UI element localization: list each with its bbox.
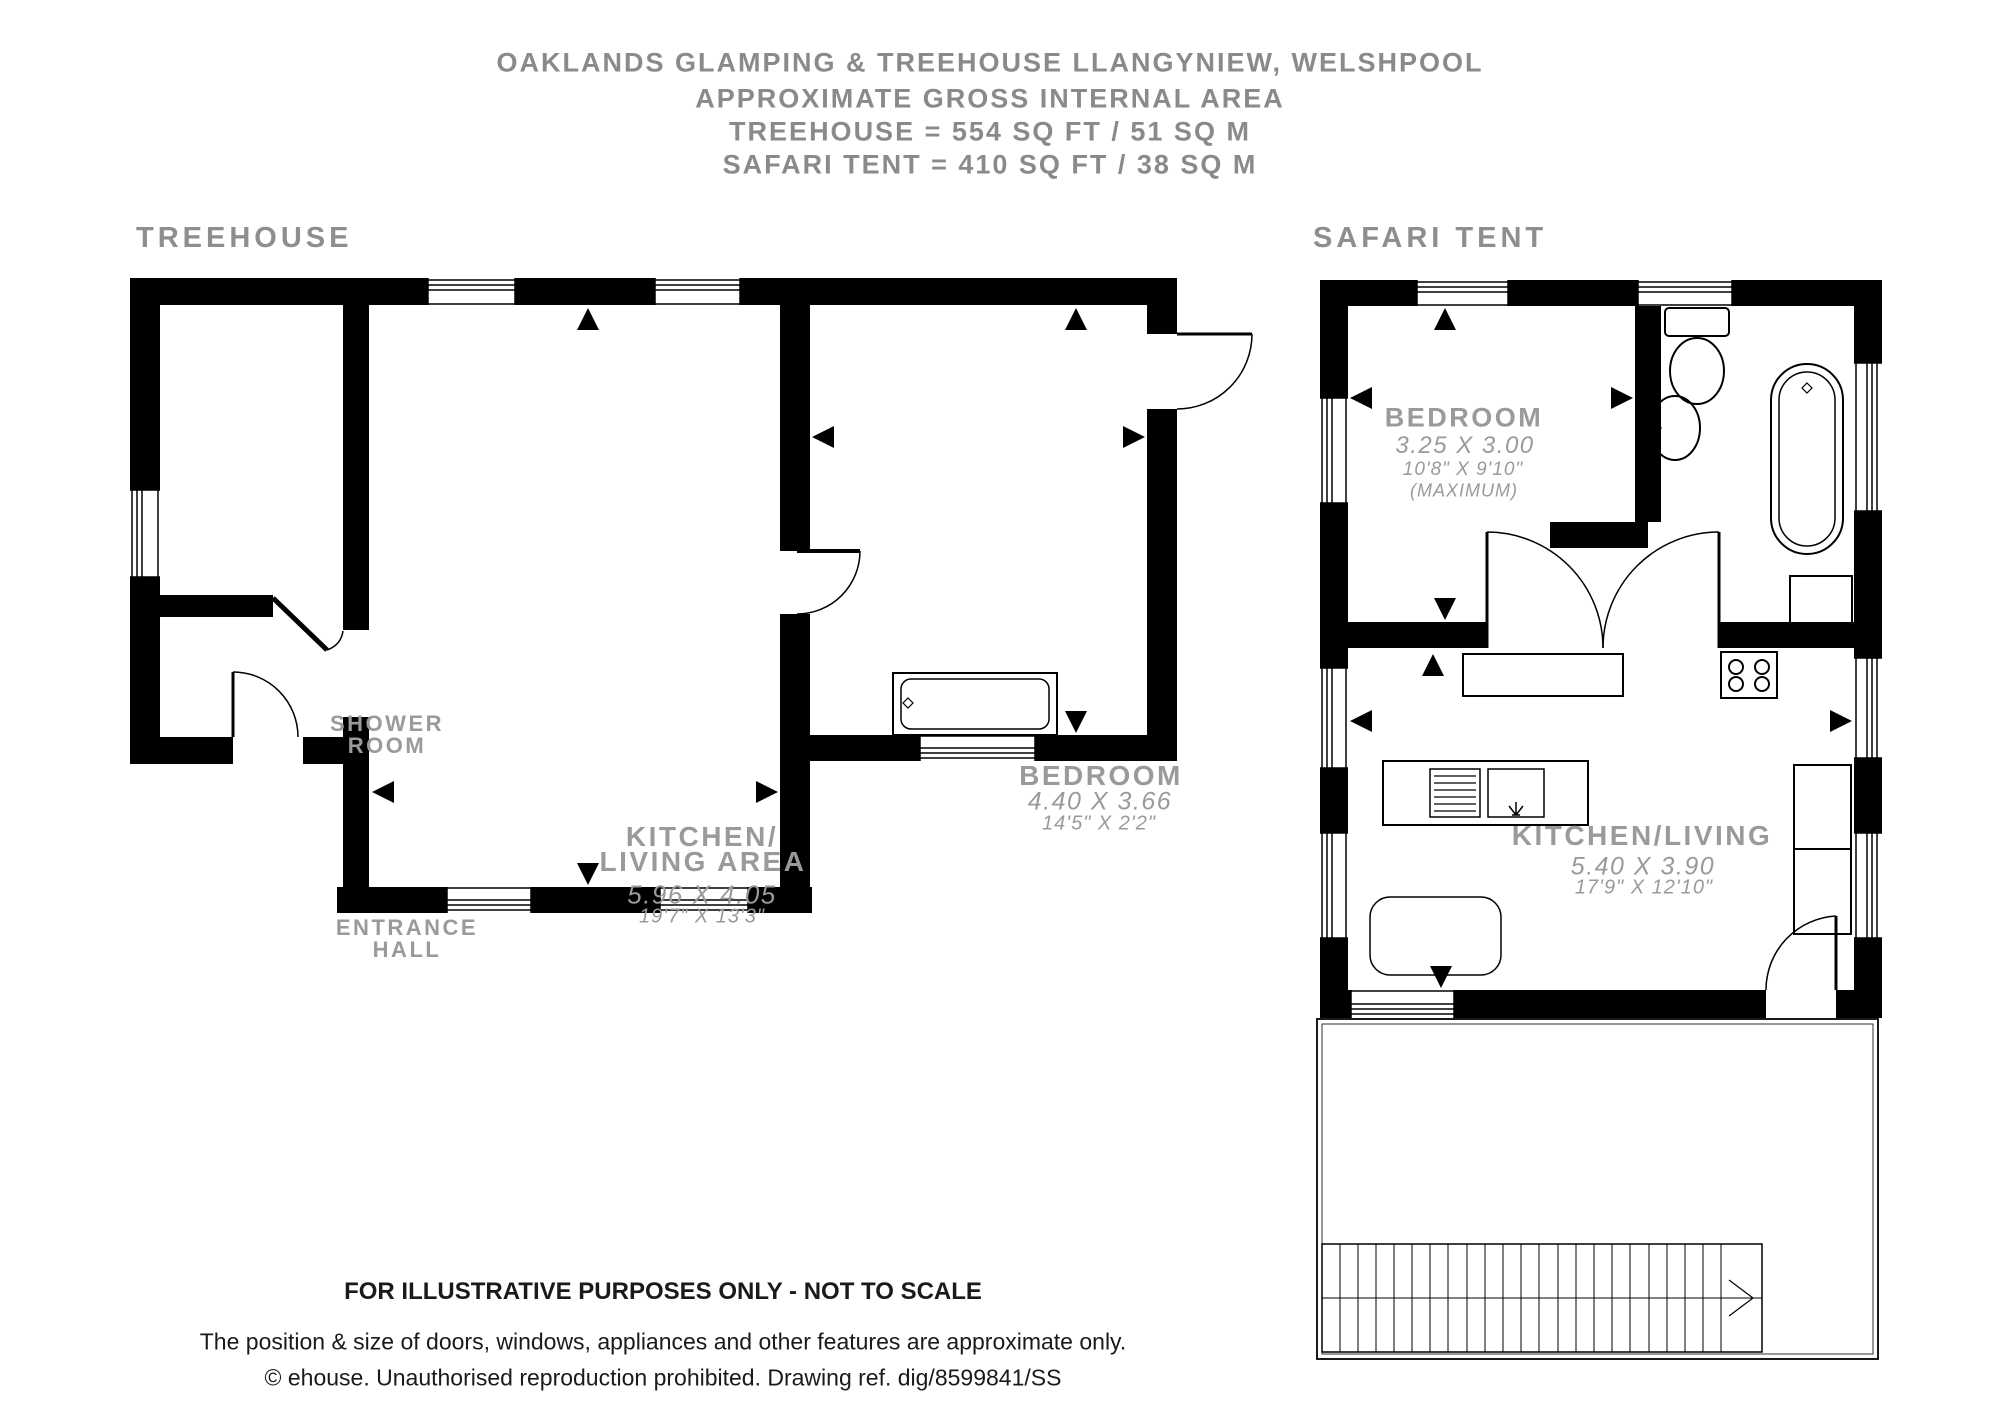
footer-disclaimer: FOR ILLUSTRATIVE PURPOSES ONLY - NOT TO …	[344, 1278, 982, 1306]
bathtub-icon	[893, 673, 1057, 735]
arrow-down-icon	[1434, 598, 1456, 620]
room-dims-ft: 19'7" X 13'3"	[639, 906, 765, 929]
page-title-line4: SAFARI TENT = 410 SQ FT / 38 SQ M	[723, 150, 1258, 181]
arrow-right-icon	[1611, 387, 1633, 409]
treehouse-walls	[130, 278, 1177, 913]
arrow-down-icon	[1430, 966, 1452, 988]
kitchen-counter-icon	[1463, 654, 1623, 696]
footer-note: The position & size of doors, windows, a…	[200, 1329, 1126, 1356]
arrow-left-icon	[1350, 710, 1372, 732]
room-dims-ft: 10'8" X 9'10"	[1403, 459, 1523, 481]
kitchen-units-icon	[1794, 765, 1851, 934]
room-label-kitchen-line2: LIVING AREA	[600, 846, 807, 878]
room-label-hall-line2: HALL	[373, 937, 442, 963]
room-dims-ft: 17'9" X 12'10"	[1575, 877, 1713, 900]
arrow-down-icon	[577, 863, 599, 885]
page-title-line1: OAKLANDS GLAMPING & TREEHOUSE LLANGYNIEW…	[496, 48, 1483, 79]
room-label-bedroom: BEDROOM	[1385, 403, 1544, 434]
room-dims-note: (MAXIMUM)	[1410, 481, 1518, 502]
safari-walls	[1320, 280, 1882, 1018]
hob-icon	[1721, 652, 1777, 698]
room-label-kitchen-living: KITCHEN/LIVING	[1512, 820, 1773, 852]
door-arc	[233, 334, 1252, 737]
window	[1320, 280, 1882, 1018]
table-icon	[1370, 897, 1501, 975]
treehouse-heading: TREEHOUSE	[136, 222, 352, 255]
bathtub-icon	[1771, 364, 1843, 554]
arrow-right-icon	[756, 781, 778, 803]
arrow-up-icon	[1434, 308, 1456, 330]
arrow-down-icon	[1065, 711, 1087, 733]
footer-copyright: © ehouse. Unauthorised reproduction proh…	[265, 1365, 1062, 1392]
arrow-right-icon	[1830, 710, 1852, 732]
sink-icon	[1650, 396, 1700, 460]
arrow-left-icon	[372, 781, 394, 803]
room-dims-ft: 14'5" X 2'2"	[1042, 813, 1156, 836]
floorplan-page: OAKLANDS GLAMPING & TREEHOUSE LLANGYNIEW…	[0, 0, 2001, 1416]
arrow-up-icon	[577, 308, 599, 330]
kitchen-sink-icon	[1383, 761, 1588, 825]
safari-tent-heading: SAFARI TENT	[1313, 222, 1547, 255]
decking	[1317, 1019, 1878, 1359]
steps	[1322, 1244, 1762, 1352]
page-title-line2: APPROXIMATE GROSS INTERNAL AREA	[695, 84, 1285, 115]
toilet-icon	[1665, 308, 1729, 404]
arrow-left-icon	[812, 426, 834, 448]
arrow-up-icon	[1065, 308, 1087, 330]
arrow-right-icon	[1123, 426, 1145, 448]
page-title-line3: TREEHOUSE = 554 SQ FT / 51 SQ M	[729, 117, 1251, 148]
room-label-shower-line2: ROOM	[348, 733, 426, 759]
arrow-left-icon	[1350, 387, 1372, 409]
room-dims-m: 3.25 X 3.00	[1395, 432, 1534, 460]
arrow-up-icon	[1422, 654, 1444, 676]
